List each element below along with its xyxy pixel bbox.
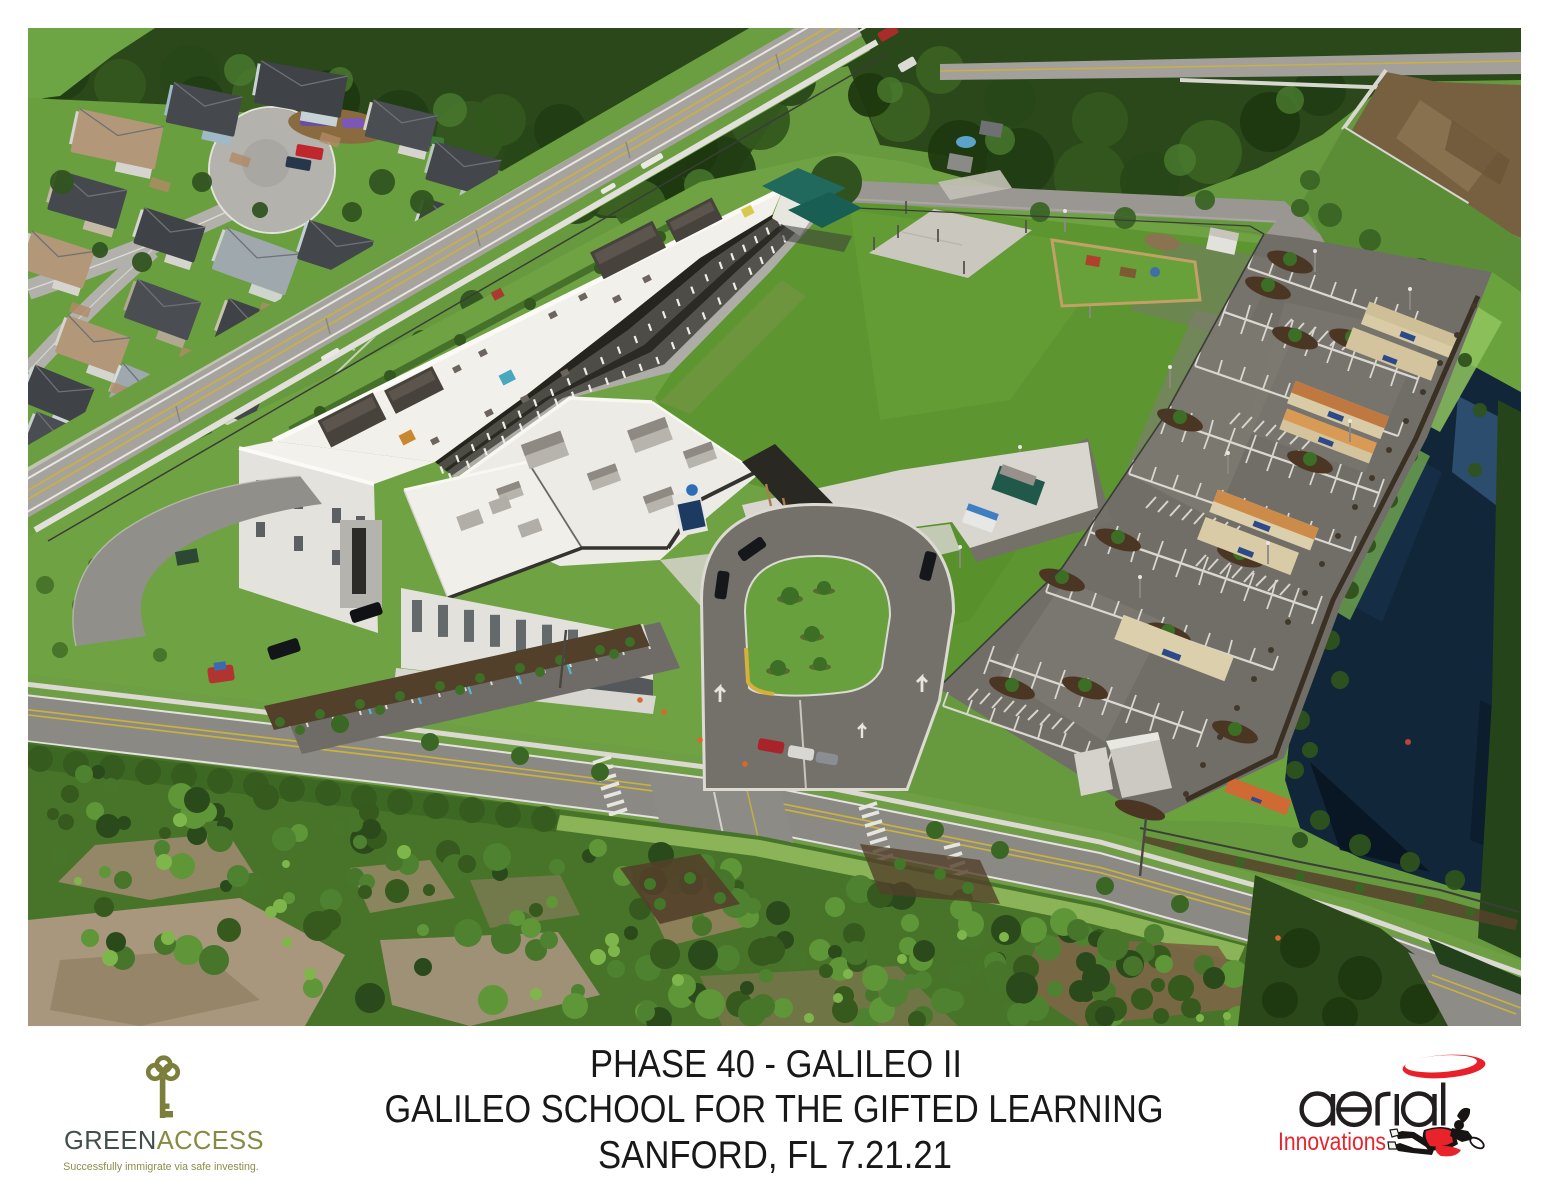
svg-text:PHASE 40 - GALILEO II: PHASE 40 - GALILEO II bbox=[590, 1043, 962, 1086]
svg-text:Successfully immigrate via saf: Successfully immigrate via safe investin… bbox=[63, 1161, 258, 1173]
svg-text:GALILEO SCHOOL FOR THE GIFTED: GALILEO SCHOOL FOR THE GIFTED LEARNING bbox=[385, 1088, 1164, 1131]
svg-text:GREENACCESS: GREENACCESS bbox=[64, 1127, 264, 1155]
svg-text:Innovations: Innovations bbox=[1278, 1128, 1386, 1156]
svg-text:SANFORD, FL 7.21.21: SANFORD, FL 7.21.21 bbox=[598, 1134, 952, 1177]
